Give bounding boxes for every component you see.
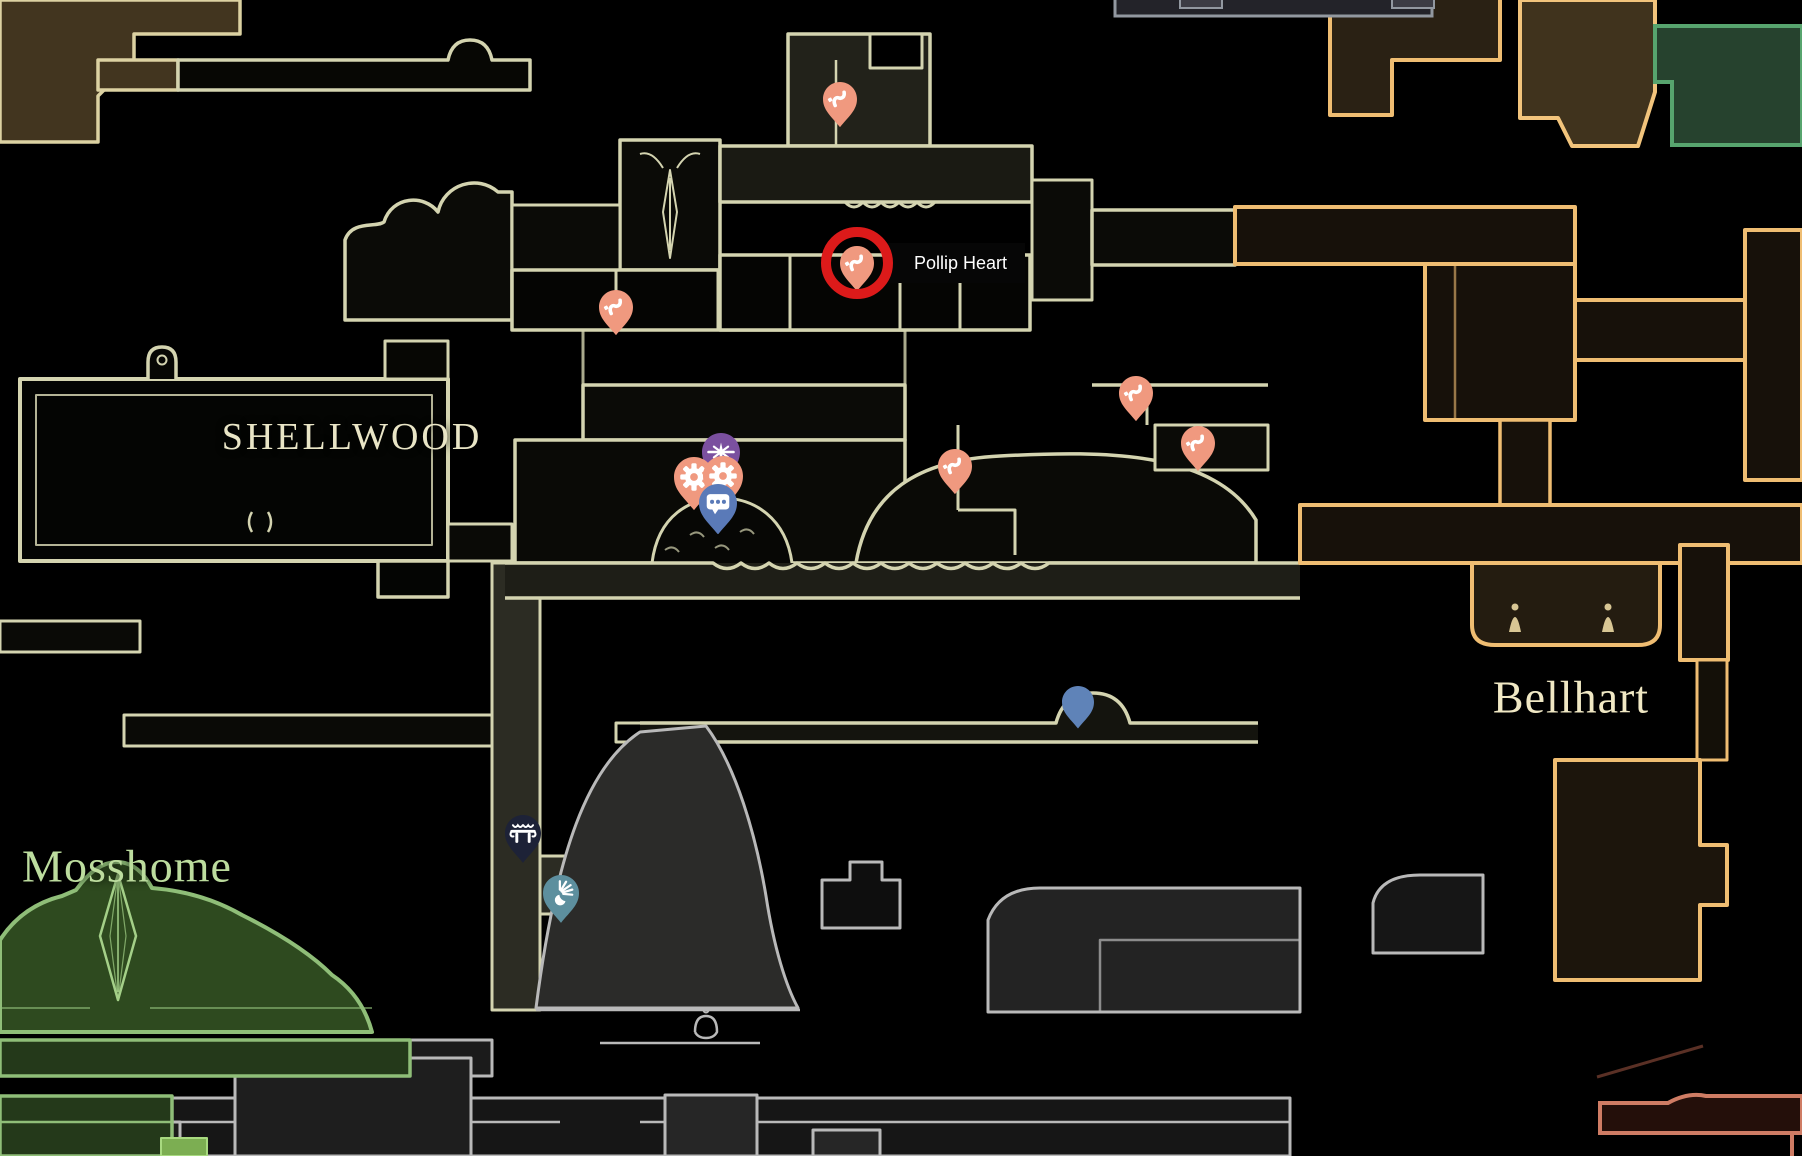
top-dark-room [1115, 0, 1434, 16]
flea-pin-northeast[interactable] [1119, 376, 1153, 426]
red-corridor [1597, 1046, 1802, 1156]
annotation-circle [821, 227, 893, 299]
bench-pin[interactable] [505, 815, 541, 868]
flea-pin-center[interactable] [938, 449, 972, 499]
burst-pin[interactable] [543, 875, 579, 928]
flea-pin-north[interactable] [823, 82, 857, 132]
map-canvas[interactable]: SHELLWOODBellhartMosshome Pollip Heart [0, 0, 1802, 1156]
chat-pin[interactable] [699, 484, 737, 539]
green-corridor [1655, 26, 1802, 145]
flea-pin-east[interactable] [1181, 426, 1215, 476]
plain-pin[interactable] [1062, 686, 1094, 734]
map-artwork [0, 0, 1802, 1156]
annotation-label: Pollip Heart [884, 243, 1025, 283]
flea-pin-west[interactable] [599, 290, 633, 340]
